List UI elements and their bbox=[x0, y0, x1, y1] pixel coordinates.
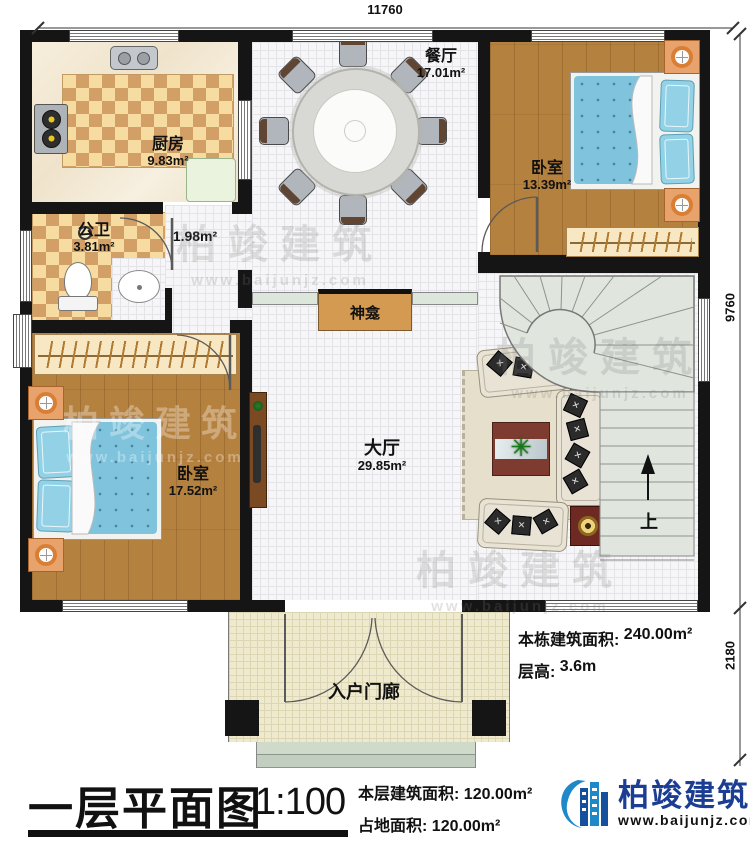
window bbox=[292, 30, 433, 42]
stairs-up-label: 上 bbox=[634, 512, 664, 533]
room-area: 3.81m² bbox=[57, 240, 131, 255]
room-name: 厨房 bbox=[118, 136, 218, 154]
bed-pillow bbox=[36, 479, 76, 532]
room-name: 餐厅 bbox=[391, 48, 491, 66]
kitchen-sink bbox=[110, 46, 158, 70]
lamp-icon bbox=[35, 544, 57, 566]
floor-area-note: 本层建筑面积: 120.00m² bbox=[358, 780, 532, 804]
window bbox=[531, 30, 665, 42]
hall-label: 大厅 29.85m² bbox=[332, 438, 432, 474]
room-area: 9.83m² bbox=[118, 154, 218, 169]
room-area: 29.85m² bbox=[332, 459, 432, 474]
lamp-icon bbox=[671, 194, 693, 216]
nightstand bbox=[664, 188, 700, 222]
side-table bbox=[570, 350, 606, 390]
sheet-title: 一层平面图 bbox=[28, 772, 263, 837]
building-area-note: 本栋建筑面积: 240.00m² bbox=[518, 626, 692, 650]
nightstand bbox=[28, 386, 64, 420]
wall-segment bbox=[433, 30, 531, 42]
sofa-pillow bbox=[512, 356, 534, 378]
bedroom-right-label: 卧室 13.39m² bbox=[497, 160, 597, 193]
floor-plan-page: 神龛 bbox=[0, 0, 750, 844]
hallway-floor bbox=[165, 205, 252, 333]
window bbox=[13, 314, 32, 368]
note-value: 240.00m² bbox=[624, 626, 693, 650]
brand-logo: 柏竣建筑 www.baijunjz.com bbox=[556, 774, 750, 834]
porch-pillar bbox=[225, 700, 259, 736]
wall-segment bbox=[230, 320, 252, 333]
medallion-icon bbox=[578, 360, 598, 380]
room-area: 13.39m² bbox=[497, 178, 597, 193]
dining-chair bbox=[339, 195, 367, 225]
dining-chair bbox=[259, 117, 289, 145]
dimension-right-porch: 2180 bbox=[723, 616, 738, 696]
shrine-label: 神龛 bbox=[350, 302, 380, 323]
wall-segment bbox=[238, 42, 252, 100]
wall-segment bbox=[20, 600, 62, 612]
coffee-table: ✳ bbox=[492, 422, 550, 476]
bed-pillow bbox=[659, 133, 695, 184]
plant-icon: ✳ bbox=[510, 432, 532, 463]
tv-cabinet bbox=[249, 392, 267, 508]
bed-pillow bbox=[36, 425, 77, 479]
porch-floor bbox=[228, 612, 510, 742]
sheet-scale: 1:100 bbox=[255, 781, 345, 824]
wall-segment bbox=[20, 202, 163, 214]
wall-segment bbox=[179, 30, 292, 42]
wardrobe bbox=[566, 227, 699, 257]
room-name: 公卫 bbox=[57, 222, 131, 240]
dimension-top: 11760 bbox=[345, 2, 425, 17]
screen-wall bbox=[412, 292, 478, 305]
floor-height-note: 层高: 3.6m bbox=[518, 658, 596, 682]
room-name: 大厅 bbox=[332, 438, 432, 459]
lamp-icon bbox=[671, 46, 693, 68]
wardrobe bbox=[34, 334, 237, 375]
room-area: 1.98m² bbox=[160, 228, 230, 244]
bed-pillow bbox=[659, 79, 695, 132]
window bbox=[698, 298, 710, 382]
wall-segment bbox=[478, 255, 710, 273]
land-area-note: 占地面积: 120.00m² bbox=[358, 812, 500, 836]
nightstand bbox=[28, 538, 64, 572]
wall-segment bbox=[20, 302, 32, 314]
brand-website: www.baijunjz.com bbox=[618, 812, 750, 828]
wall-segment bbox=[188, 600, 285, 612]
room-area: 17.52m² bbox=[143, 484, 243, 499]
porch-pillar bbox=[472, 700, 506, 736]
dining-chair bbox=[417, 117, 447, 145]
side-table bbox=[570, 506, 606, 546]
bathroom-label: 公卫 3.81m² bbox=[57, 222, 131, 255]
room-area: 17.01m² bbox=[391, 66, 491, 81]
wall-segment bbox=[462, 600, 545, 612]
wall-segment bbox=[232, 202, 252, 214]
screen-wall bbox=[252, 292, 318, 305]
note-label: 层高: bbox=[518, 658, 555, 682]
dimension-right-main: 9760 bbox=[723, 268, 738, 348]
toilet bbox=[64, 262, 92, 300]
medallion-icon bbox=[578, 516, 598, 536]
brand-name: 柏竣建筑 bbox=[618, 780, 750, 813]
brand-logo-icon bbox=[556, 774, 612, 834]
window bbox=[545, 600, 698, 612]
porch-steps bbox=[256, 742, 476, 768]
tv-icon bbox=[253, 425, 261, 483]
porch-label: 入户门廊 bbox=[294, 682, 434, 703]
wall-segment bbox=[698, 600, 710, 612]
window bbox=[62, 600, 188, 612]
dining-label: 餐厅 17.01m² bbox=[391, 48, 491, 81]
sofa-pillow bbox=[511, 515, 532, 536]
note-label: 本栋建筑面积: bbox=[518, 626, 619, 650]
shrine-cabinet: 神龛 bbox=[318, 289, 412, 331]
wall-segment bbox=[238, 270, 252, 308]
bedroom-left-label: 卧室 17.52m² bbox=[143, 466, 243, 499]
wall-segment bbox=[20, 320, 170, 333]
wall-segment bbox=[698, 382, 710, 612]
room-name: 卧室 bbox=[143, 466, 243, 484]
hallway-label: 1.98m² bbox=[160, 228, 230, 244]
room-name: 入户门廊 bbox=[294, 682, 434, 703]
wall-segment bbox=[20, 30, 32, 230]
kitchen-label: 厨房 9.83m² bbox=[118, 136, 218, 169]
window bbox=[69, 30, 179, 42]
note-value: 3.6m bbox=[560, 658, 596, 682]
window bbox=[20, 230, 32, 302]
toilet-tank bbox=[58, 296, 98, 311]
pass-window bbox=[238, 100, 252, 180]
bathroom-sink bbox=[118, 270, 160, 303]
title-underline bbox=[28, 830, 348, 837]
plant-icon bbox=[253, 401, 263, 411]
lamp-icon bbox=[35, 392, 57, 414]
dining-table bbox=[292, 68, 420, 196]
stove bbox=[34, 104, 68, 154]
room-name: 卧室 bbox=[497, 160, 597, 178]
nightstand bbox=[664, 40, 700, 74]
